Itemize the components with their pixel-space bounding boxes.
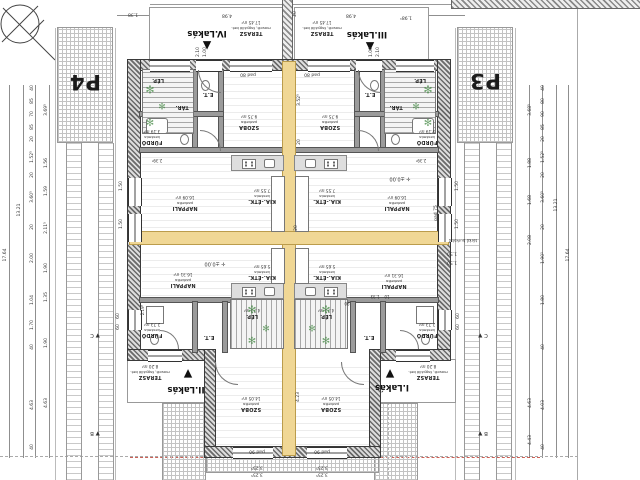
dim-label: 4.98 [222, 12, 232, 17]
room-label: E.T. [203, 91, 214, 97]
dim-label: 17.64 [567, 249, 572, 262]
stove-icon [242, 287, 256, 297]
room-area: 3.19 m² [417, 129, 438, 134]
dim-label: 2.10 [377, 47, 382, 57]
room-label: KIA.-ÉTK.kerámia5.65 m² [313, 264, 341, 280]
walkway-strip [66, 143, 82, 480]
dim-label: 3.25⁵ [316, 471, 328, 476]
dim-label: ✛ ±0.00 [204, 261, 225, 266]
dim-label: 80 [542, 98, 547, 104]
dim-label: 4.63 [31, 400, 36, 410]
dim-label: 2.19⁵ [141, 305, 145, 316]
unit-label: IV.Lakás [187, 28, 226, 38]
door-arc [358, 70, 381, 93]
party-wall-horizontal [130, 232, 448, 244]
door-arc [198, 70, 221, 93]
room-area: 5.65 m² [248, 264, 276, 269]
dim-label: 2.08 [529, 235, 534, 245]
toilet-icon [180, 134, 189, 145]
dim-label: 85 [31, 98, 36, 104]
door-arc [358, 130, 379, 151]
room-material: mosott, fagyálló bet. [408, 369, 447, 374]
room-area: 2.73 m² [142, 322, 163, 327]
dim-label: 1.88 [529, 158, 534, 168]
dim-label: 60 [117, 324, 122, 330]
unit-label: I.Lakás [375, 382, 409, 392]
dim-label: 3.25⁵ [251, 464, 263, 469]
plant-icon: ✻ [248, 337, 256, 347]
room-label: FÜRDŐkerámia3.19 m² [417, 129, 438, 145]
cabinet [295, 248, 309, 284]
dim-label: 20 [542, 224, 547, 230]
unit-label: III.Lakás [347, 29, 387, 39]
dim-label: ✛ ±0.00 [389, 176, 410, 181]
room-label: TERASZmosott, fagyálló bet.17.45 m² [231, 20, 270, 36]
stove-icon [324, 159, 338, 169]
window [128, 214, 142, 242]
floor-szoba [223, 70, 287, 148]
dim-label: 1.50 [120, 181, 125, 191]
dim-label: 1.90¹ [542, 252, 547, 264]
dim-label: 2.10 [197, 47, 202, 57]
kitchen-counter [232, 284, 283, 298]
dim-label: 40 [31, 344, 36, 350]
dim-label: térkő burkolat [449, 238, 477, 242]
dim-label: 40 [542, 344, 547, 350]
wall-interior [193, 70, 197, 152]
room-label: TERASZmosott, fagyálló bet.8.20 m² [130, 364, 169, 380]
dim-chain-line [9, 85, 10, 458]
room-label: FÜRDŐkerámia3.19 m² [142, 129, 163, 145]
room-area: 14.05 m² [321, 396, 341, 401]
wall-interior [381, 302, 385, 352]
plant-icon: ✻ [321, 305, 330, 316]
dim-label: 1.38 [128, 11, 138, 16]
paving-hatch [163, 404, 205, 480]
room-name: LÉP. [152, 77, 164, 83]
room-material: kerámia [417, 327, 438, 332]
room-area: 16.31 m² [170, 272, 195, 277]
dim-label: 20 [31, 224, 36, 230]
kitchen-counter [232, 156, 283, 170]
room-material: mosott, fagyálló bet. [130, 369, 169, 374]
dim-label: pad 90 [314, 448, 330, 453]
sink-icon [305, 159, 316, 168]
room-material: kerámia [417, 134, 438, 139]
dim-label: 1.50 [456, 181, 461, 191]
dim-label: 1.00 [370, 47, 375, 57]
dim-label: 40 [31, 85, 36, 91]
room-area: 9.75 m² [320, 114, 340, 119]
plant-icon: ✻ [412, 104, 420, 113]
room-material: mosott, fagyálló bet. [302, 25, 341, 30]
room-label: NAPPALIparketta16.31 m² [381, 273, 406, 289]
dim-label: 2.11⁵ [45, 222, 50, 234]
dim-label: 1.90 [45, 338, 50, 348]
dim-label: 1.50 [120, 219, 125, 229]
window [128, 178, 142, 206]
room-label: NAPPALIparketta16.31 m² [170, 272, 195, 288]
room-area: 7.55 m² [248, 188, 276, 193]
sink-icon [264, 287, 275, 296]
dim-label: 1.33 [371, 294, 380, 298]
dim-label: 1.50 [447, 250, 457, 255]
room-label: FÜRDŐkerámia2.73 m² [142, 322, 163, 338]
room-label: E.T. [365, 91, 376, 97]
kitchen-counter [295, 156, 346, 170]
entry-arrow-icon: ▼ [386, 369, 394, 380]
plant-icon: ✻ [262, 326, 270, 335]
dim-chain-line [556, 85, 557, 458]
dim-label: 60 [457, 324, 462, 330]
window [438, 178, 452, 206]
room-area: 9.75 m² [239, 114, 259, 119]
dim-label: 1.90 [45, 263, 50, 273]
dim-label: 4.43 [529, 435, 534, 445]
dim-label: 60 [457, 313, 462, 319]
door-arc [160, 330, 179, 349]
dim-label: 40 [542, 444, 547, 450]
stove-icon [242, 159, 256, 169]
terrace-door [148, 350, 182, 362]
plant-icon: ✻ [247, 305, 256, 316]
dim-label: 1.80 [542, 295, 547, 305]
room-area: 2.73 m² [417, 322, 438, 327]
room-area: 3.19 m² [142, 129, 163, 134]
room-label: KIA.-ÉTK.kerámia7.55 m² [313, 188, 341, 204]
room-name: E.T. [204, 334, 215, 340]
room-material: parketta [241, 401, 261, 406]
dim-label: 2.39⁵ [416, 158, 427, 162]
parking-label-p3: P3 [469, 69, 501, 93]
room-label: NAPPALIparketta16.09 m² [172, 195, 197, 211]
plant-icon: ✻ [423, 85, 432, 96]
toilet-icon [391, 134, 400, 145]
room-label: SZOBAparketta9.75 m² [239, 114, 259, 130]
room-area: 7.55 m² [313, 188, 341, 193]
window [396, 60, 434, 72]
dim-label: 4.03 [542, 400, 547, 410]
room-label: KIA.-ÉTK.kerámia7.55 m² [248, 188, 276, 204]
room-label: TÁR. [175, 104, 189, 110]
dim-label: 85 [31, 124, 36, 130]
dim-label: 60 [117, 313, 122, 319]
plot-line [515, 28, 516, 480]
room-area: 5.65 m² [313, 264, 341, 269]
dim-label: pad 90 [249, 448, 265, 453]
room-label: E.T. [364, 334, 375, 340]
property-line [577, 0, 578, 480]
room-material: parketta [239, 119, 259, 124]
walkway-strip [496, 143, 512, 480]
dim-label: 20 [294, 11, 299, 17]
room-label: TERASZmosott, fagyálló bet.17.45 m² [302, 20, 341, 36]
dim-label: 1.70 [31, 320, 36, 330]
room-material: mosott, fagyálló bet. [231, 25, 270, 30]
room-name: E.T. [365, 91, 376, 97]
divider-fence [283, 0, 292, 62]
room-label: LÉP. [414, 77, 426, 83]
wall-interior [223, 302, 227, 352]
sink-icon [264, 159, 275, 168]
dim-label: 40 [542, 85, 547, 91]
terrace-door [396, 350, 430, 362]
plant-icon: ✻ [146, 119, 154, 129]
dim-label: 4.63 [529, 398, 534, 408]
dim-label: 1.04 [31, 295, 36, 305]
dim-label: 4.63 [45, 398, 50, 408]
dim-label: 4.98 [346, 12, 356, 17]
kitchen-counter [295, 284, 346, 298]
wall-protrusion-east [370, 350, 380, 457]
dim-label: 1.52⁵ [31, 151, 36, 163]
room-label: E.T. [204, 334, 215, 340]
dim-label: 1.00 [204, 47, 209, 57]
dim-label: pad 80 [240, 71, 256, 76]
dim-label: ▼ C [90, 331, 100, 337]
wall-interior [351, 302, 355, 352]
dim-label: 90 [344, 301, 349, 305]
floor-szoba [291, 70, 355, 148]
dim-label: 20 [542, 172, 547, 178]
dim-label: 90 [542, 111, 547, 117]
plant-icon: ✻ [322, 337, 330, 347]
dim-label: 40 [31, 444, 36, 450]
dim-label: 20 [31, 172, 36, 178]
dim-label: 3.25⁵ [316, 464, 328, 469]
plant-icon: ✻ [424, 119, 432, 129]
room-area: 16.09 m² [172, 195, 197, 200]
dim-label: 4.23 [297, 392, 302, 402]
window [150, 60, 190, 72]
entry-arrow-icon: ▼ [184, 369, 192, 380]
dim-label: 13.21 [18, 204, 23, 217]
room-label: FÜRDŐkerámia2.73 m² [417, 322, 438, 338]
plot-line [115, 28, 116, 480]
dim-label: 70 [31, 111, 36, 117]
sink-icon [305, 287, 316, 296]
walkway-strip [98, 143, 114, 480]
room-material: parketta [320, 119, 340, 124]
room-name: LÉP. [414, 77, 426, 83]
dim-label: 3.52⁵ [298, 94, 303, 106]
floorplan-sheet: P4 P3 [0, 0, 640, 480]
plant-icon: ✻ [158, 104, 166, 113]
wall-interior [193, 302, 197, 352]
dim-label: 2.39⁵ [152, 158, 163, 162]
window [438, 310, 452, 330]
room-label: LÉP. [152, 77, 164, 83]
plant-icon: ✻ [308, 326, 316, 335]
room-area: 14.05 m² [241, 396, 261, 401]
dim-label: 3.60⁵ [542, 191, 547, 203]
room-name: TÁR. [175, 104, 189, 110]
plant-icon: ✻ [145, 85, 154, 96]
dim-label: ▼ B [90, 429, 100, 435]
cabinet [295, 176, 309, 232]
parking-label-p4: P4 [69, 70, 101, 94]
dim-label: 17.64 [4, 249, 9, 262]
paving-hatch [375, 404, 417, 480]
room-material: kerámia [142, 134, 163, 139]
dim-label: 1.35 [45, 292, 50, 302]
dim-label: 3.69⁵ [45, 104, 50, 116]
room-label: SZOBAparketta14.05 m² [321, 396, 341, 412]
dim-label: 1.68 [529, 195, 534, 205]
dim-label: 1.59 [45, 186, 50, 196]
dim-label: 2.00 [31, 253, 36, 263]
room-label: KIA.-ÉTK.kerámia5.65 m² [248, 264, 276, 280]
dim-label: 20 [295, 225, 300, 231]
dim-chain-line [23, 85, 24, 458]
room-area: 16.09 m² [384, 195, 409, 200]
dim-label: 3.60⁵ [31, 191, 36, 203]
room-label: SZOBAparketta14.05 m² [241, 396, 261, 412]
dim-label: 1.56 [45, 158, 50, 168]
dim-label: pad 80 [304, 71, 320, 76]
room-material: parketta [321, 401, 341, 406]
room-name: E.T. [203, 91, 214, 97]
room-label: SZOBAparketta9.75 m² [320, 114, 340, 130]
room-name: E.T. [364, 334, 375, 340]
dim-label: 3.68⁵ [529, 104, 534, 116]
room-name: TÁR. [389, 104, 403, 110]
dim-label: 85 [542, 124, 547, 130]
top-edge-hatch [452, 0, 640, 8]
room-label: TERASZmosott, fagyálló bet.8.20 m² [408, 364, 447, 380]
room-material: kerámia [142, 327, 163, 332]
unit-label: II.Lakás [167, 384, 204, 394]
dim-label: pad 75 [435, 205, 440, 221]
dim-label: 20 [542, 136, 547, 142]
dim-label: B ▼ [478, 429, 488, 435]
dim-label: 1.50 [456, 219, 461, 229]
dim-label: 13.21 [555, 199, 560, 212]
room-label: NAPPALIparketta16.09 m² [384, 195, 409, 211]
dim-label: 10 [384, 294, 389, 298]
dim-label: 3.25⁵ [251, 471, 263, 476]
dim-label: 20 [31, 136, 36, 142]
room-label: TÁR. [389, 104, 403, 110]
dim-label: C ▼ [478, 331, 488, 337]
dim-label: 1.50 [447, 259, 457, 264]
dim-label: 1.52⁵ [542, 151, 547, 163]
paving-hatch [207, 458, 378, 472]
stove-icon [324, 287, 338, 297]
dim-chain-line [568, 85, 569, 458]
door-arc [200, 130, 221, 151]
dim-label: 1.98¹ [400, 14, 412, 19]
wall-protrusion-west [205, 350, 215, 457]
dim-label: 20 [298, 139, 303, 145]
plot-line [55, 28, 56, 480]
room-area: 16.31 m² [381, 273, 406, 278]
